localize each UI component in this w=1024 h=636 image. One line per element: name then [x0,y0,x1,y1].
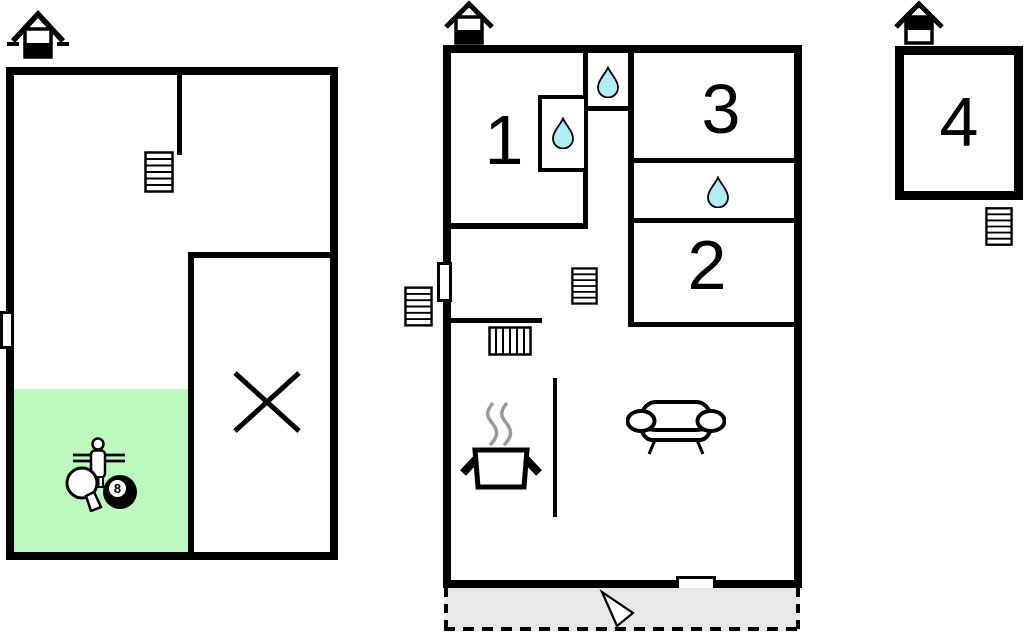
steam-icon [502,403,511,445]
floor-plan: 8 1 3 2 [0,0,1024,636]
door-marker [437,262,452,302]
sofa-icon [626,394,726,456]
wall-segment [451,223,588,229]
room-label-2: 2 [688,230,727,300]
wall-segment [177,75,182,155]
house-level-basement-icon [6,8,70,66]
exterior-stairs-icon [404,286,433,327]
stairs-icon [571,265,598,307]
room-label-1: 1 [485,105,524,175]
table-tennis-paddle-icon [67,468,101,511]
water-drop-icon [552,117,574,149]
house-level-upper-icon [893,0,945,46]
steam-icon [488,403,497,445]
room-label-4: 4 [940,87,979,157]
wall-segment [451,318,542,323]
stairs-icon [985,205,1013,248]
eight-ball-number: 8 [114,481,121,496]
game-room-icons: 8 [56,430,142,512]
wall-segment [628,322,794,327]
wall-segment [628,53,634,327]
house-level-ground-icon [443,0,495,46]
terrace-dashed-edge [444,588,448,631]
kitchen-divider-wall [553,378,557,517]
water-drop-icon [707,176,729,208]
wall-segment [634,158,794,163]
window-marker [0,311,14,349]
wall-segment [634,218,794,223]
room-label-3: 3 [702,74,741,144]
stairs-icon-horizontal [488,326,532,356]
kitchen-pot-icon [459,398,543,490]
water-drop-icon [597,66,619,98]
x-mark-icon [229,367,305,437]
entrance-arrow-icon [597,589,637,629]
terrace-dashed-edge [796,588,800,631]
stairs-icon [144,151,174,193]
wall-segment [586,106,633,111]
eight-ball-icon: 8 [103,475,137,509]
